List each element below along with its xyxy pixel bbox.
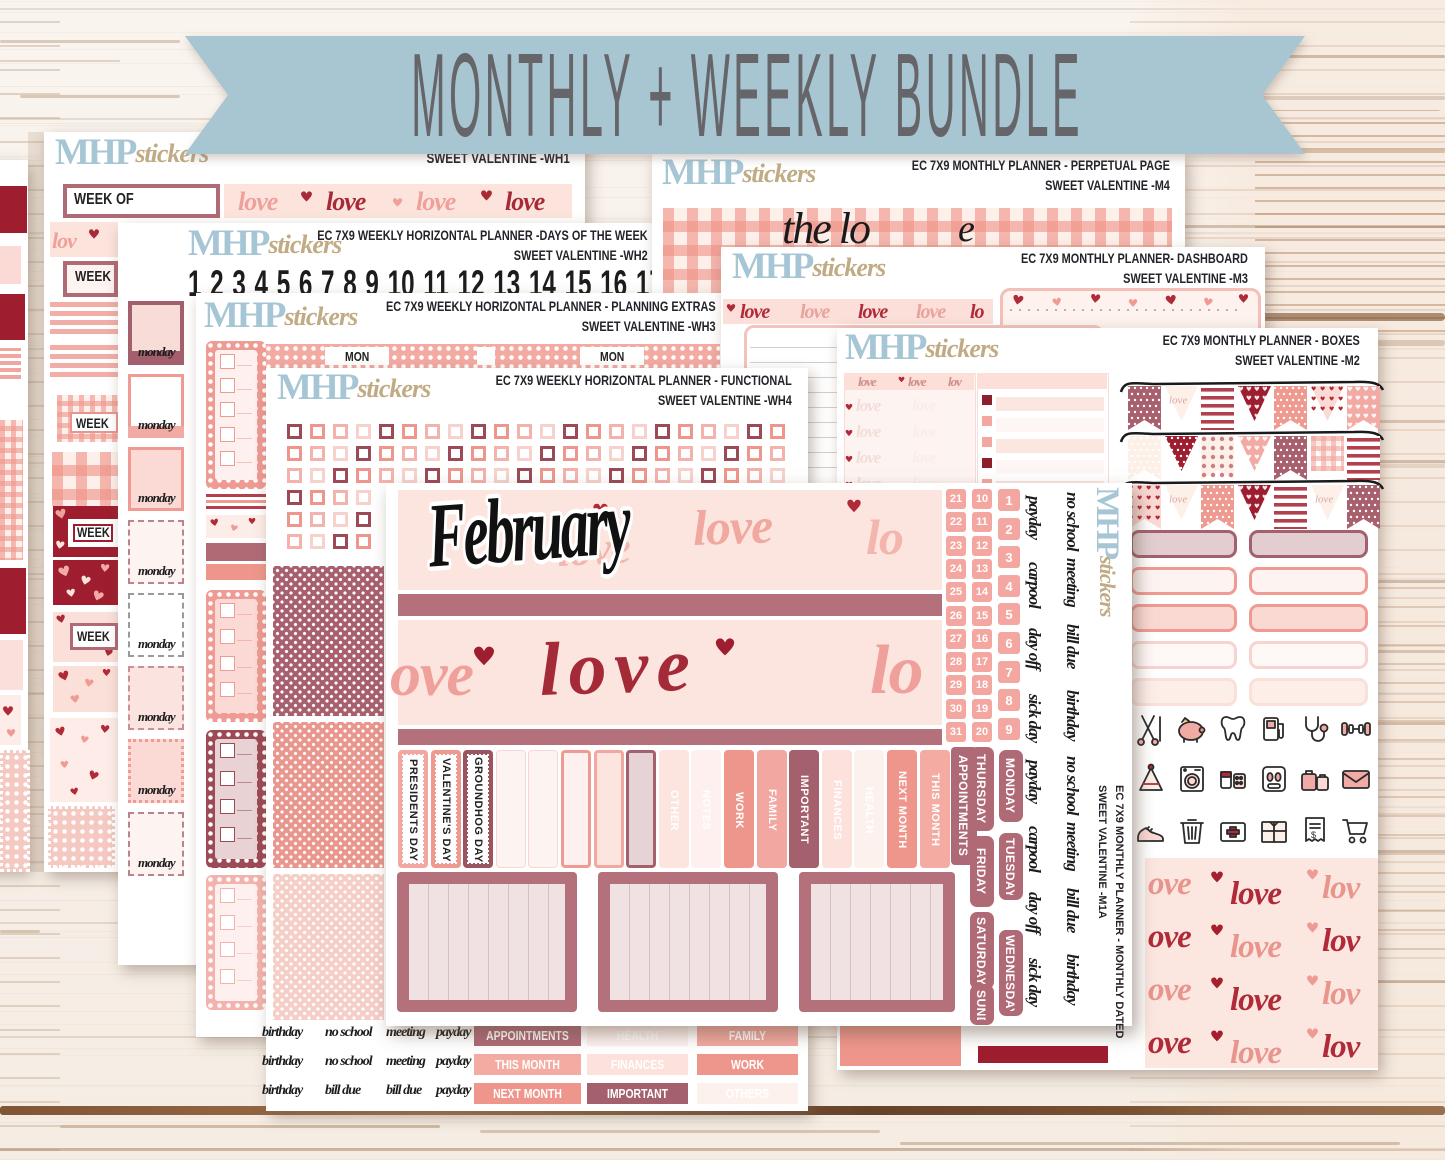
svg-text:love: love <box>1315 494 1333 506</box>
svg-text:$: $ <box>1311 830 1316 840</box>
svg-text:love: love <box>1169 494 1187 506</box>
svg-text:love: love <box>1169 395 1187 407</box>
